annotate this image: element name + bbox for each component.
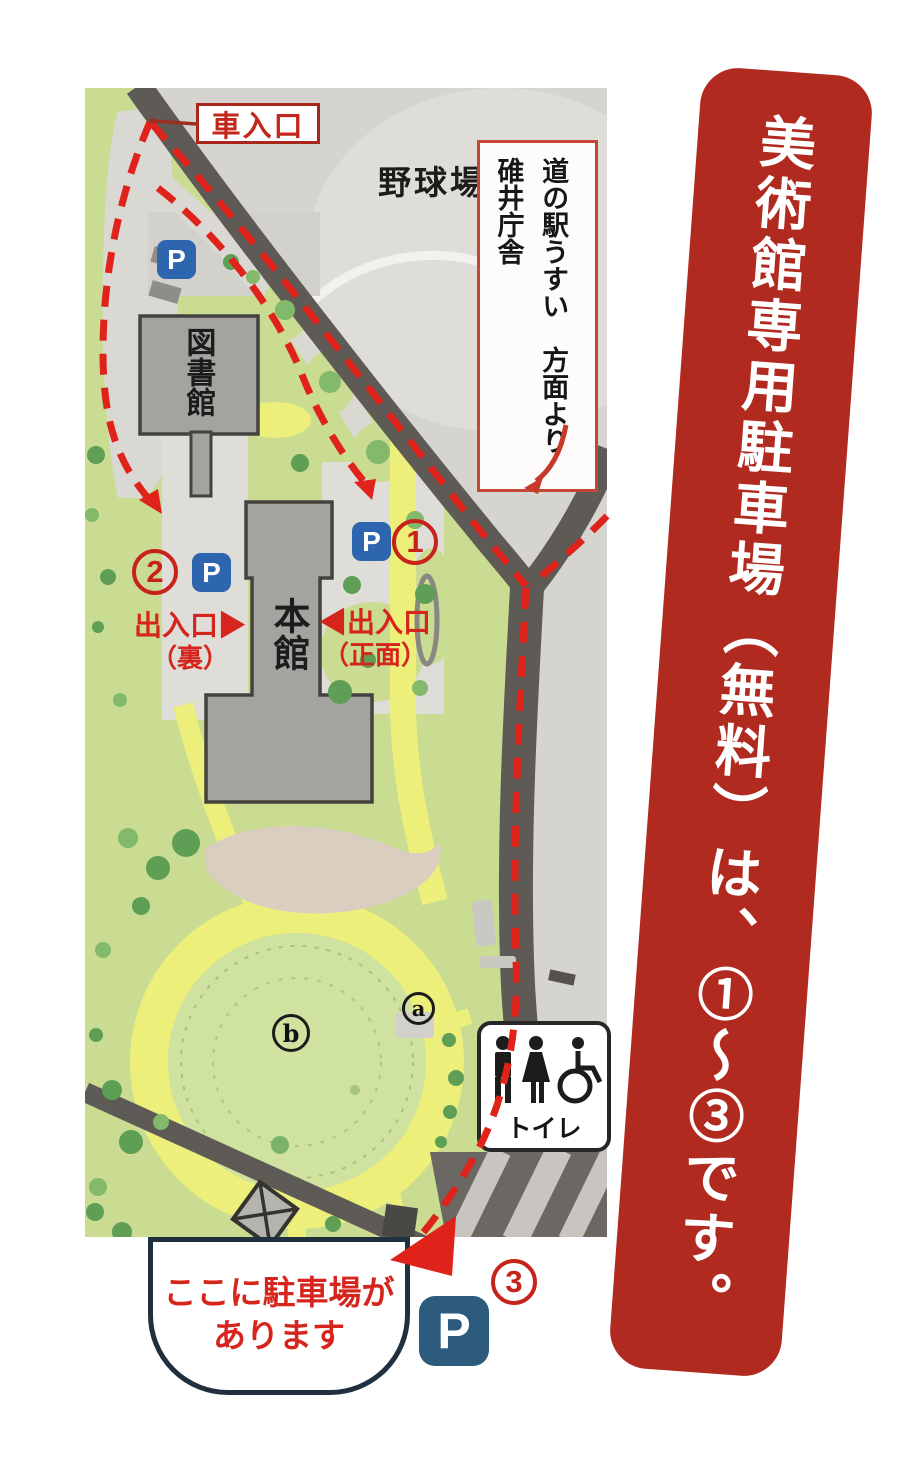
woman-icon	[522, 1036, 550, 1103]
exit-front-line1: ◀出入口	[316, 606, 434, 640]
exit-front-label: ◀出入口 （正面）	[316, 606, 434, 672]
exit-front-line2: （正面）	[316, 640, 434, 672]
toilet-label: トイレ	[481, 1109, 607, 1145]
toilet-sign: トイレ	[477, 1021, 611, 1152]
route-number-3: 3	[491, 1259, 537, 1305]
spot-b-marker: b	[272, 1014, 310, 1052]
direction-note-text: 道の駅うすい 方面より 碓井庁舎	[486, 157, 575, 481]
shed	[382, 1204, 418, 1240]
parking-icon-north: P	[157, 240, 196, 279]
exit-back-label: 出入口▶ （裏）	[131, 609, 249, 675]
route-number-2: 2	[132, 549, 178, 595]
direction-note-box: 道の駅うすい 方面より 碓井庁舎	[477, 140, 598, 492]
info-banner-text: 美術館専用駐車場（無料）は、①〜③です。	[668, 112, 813, 1333]
route-number-1: 1	[392, 519, 438, 565]
museum-parking-flyer: 車入口 野球場 道の駅うすい 方面より 碓井庁舎 図書館 本館 出入口▶ （裏）…	[0, 0, 917, 1465]
man-icon	[495, 1036, 511, 1103]
parking-icon-1: P	[352, 522, 391, 561]
car-entrance-label: 車入口	[196, 103, 320, 144]
spot-a-marker: a	[402, 992, 435, 1025]
library-label: 図書館	[181, 327, 213, 417]
callout-line1: ここに駐車場が	[153, 1272, 405, 1315]
parking-icon-2: P	[192, 553, 231, 592]
toilet-icons	[481, 1033, 607, 1113]
exit-back-line2: （裏）	[131, 643, 249, 675]
parking-icon-3: P	[419, 1296, 489, 1366]
exit-back-line1: 出入口▶	[131, 609, 249, 643]
parking-callout: ここに駐車場が あります	[148, 1237, 410, 1395]
main-building-label: 本館	[268, 597, 308, 671]
baseball-field-label: 野球場	[378, 156, 486, 204]
callout-line2: あります	[153, 1315, 405, 1358]
wheelchair-icon	[560, 1037, 600, 1101]
